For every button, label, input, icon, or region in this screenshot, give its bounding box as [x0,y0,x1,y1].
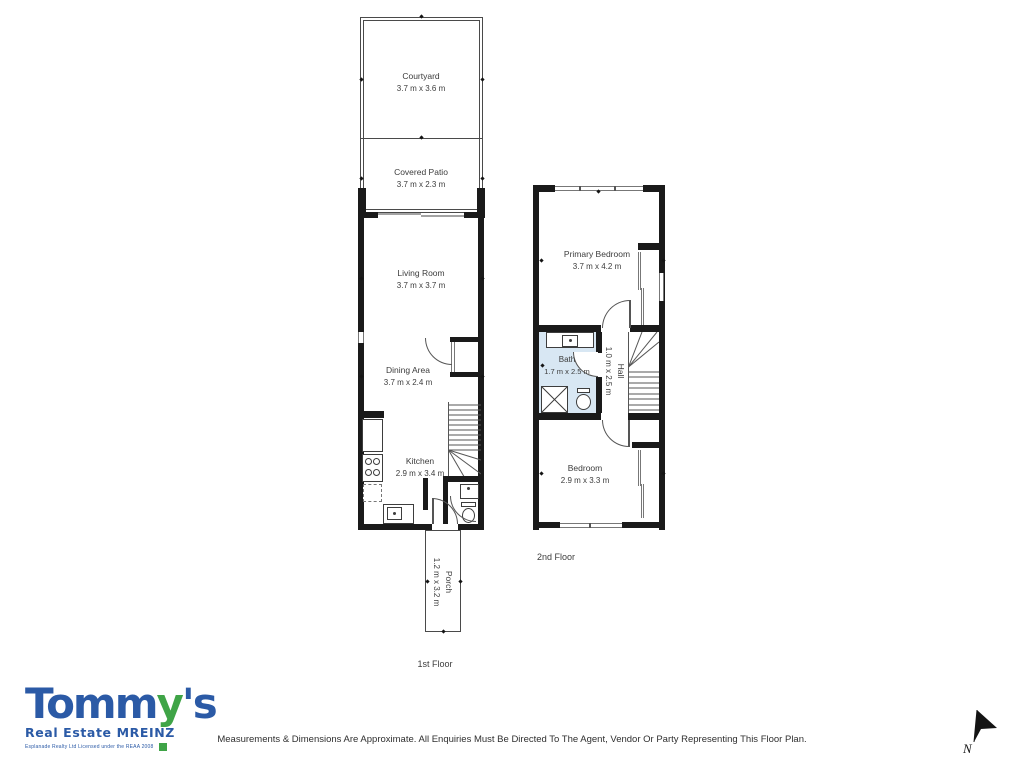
shower [541,386,568,413]
window-mullion [579,186,581,191]
toilet-bowl [576,394,591,410]
room-label-courtyard: Courtyard 3.7 m x 3.6 m [371,70,471,95]
room-dims: 1.0 m x 2.5 m [602,336,614,406]
room-label-bedroom: Bedroom 2.9 m x 3.3 m [535,462,635,487]
closet-sliding-door [641,484,644,518]
logo-text-blue-2: 's [182,679,216,728]
dishwasher [363,484,382,502]
wall-segment [632,442,665,448]
wall-segment [458,524,484,530]
room-dims: 3.7 m x 2.3 m [371,179,471,191]
room-label-kitchen: Kitchen 2.9 m x 3.4 m [370,455,470,480]
room-dims: 2.9 m x 3.3 m [535,475,635,487]
first-floor-label: 1st Floor [385,659,485,669]
door-leaf [628,420,630,447]
logo-key-y: y [156,679,181,728]
sliding-door [378,213,421,215]
room-dims: 3.7 m x 3.7 m [371,280,471,292]
closet-sliding-door [641,288,644,325]
room-label-covered-patio: Covered Patio 3.7 m x 2.3 m [371,166,471,191]
sliding-door [421,215,464,217]
room-name: Courtyard [371,70,471,83]
faucet [569,339,572,342]
door-leaf [432,498,434,524]
room-dims: 3.7 m x 3.6 m [371,83,471,95]
room-dims: 2.9 m x 3.4 m [370,468,470,480]
room-name: Porch [442,547,455,617]
wall-segment [659,185,665,530]
wall-segment [630,325,665,332]
room-name: Bedroom [535,462,635,475]
faucet [467,487,470,490]
faucet [393,512,396,515]
room-dims: 3.7 m x 4.2 m [547,261,647,273]
wall-segment [358,524,432,530]
dimension-tick [480,77,484,81]
wall-segment [533,522,560,528]
room-label-hall: Hall 1.0 m x 2.5 m [605,336,627,406]
room-label-dining-area: Dining Area 3.7 m x 2.4 m [358,364,458,389]
window [560,523,622,528]
door-swing [425,338,452,365]
dimension-tick [458,579,462,583]
first-floor-plan: Porch 1.2 m x 3.2 m Courtyard 3.7 m x 3.… [356,14,488,676]
window [358,332,364,343]
north-label: N [962,741,973,756]
north-arrow-icon: N [960,700,1006,758]
second-floor-plan: Primary Bedroom 3.7 m x 4.2 m Bath 1.7 m… [531,183,667,565]
toilet-tank [577,388,590,393]
wall-segment [622,522,665,528]
wall-segment [596,377,602,413]
room-name: Kitchen [370,455,470,468]
fridge [362,419,383,452]
wall-segment [643,185,665,192]
shower-glass-lines [542,387,567,412]
floor-plan-page: Porch 1.2 m x 3.2 m Courtyard 3.7 m x 3.… [0,0,1024,768]
wall-segment [533,185,555,192]
room-dims: 1.2 m x 3.2 m [430,547,442,617]
door-swing [602,420,629,447]
wall-segment [358,188,366,214]
room-label-living-room: Living Room 3.7 m x 3.7 m [371,267,471,292]
wall-segment [477,188,485,214]
closet-sliding-door [638,450,641,486]
room-label-primary-bedroom: Primary Bedroom 3.7 m x 4.2 m [547,248,647,273]
dimension-tick [596,189,600,193]
door-leaf [629,300,631,328]
disclaimer-text: Measurements & Dimensions Are Approximat… [0,734,1024,745]
logo-text-blue: Tomm [25,679,156,728]
dimension-tick [539,258,543,262]
room-dims: 3.7 m x 2.4 m [358,377,458,389]
room-name: Primary Bedroom [547,248,647,261]
wall-segment [450,337,484,342]
room-dims: 1.7 m x 2.5 m [537,366,597,377]
wall-segment [539,413,601,420]
window-mullion [589,523,591,528]
window [659,273,664,301]
room-name: Dining Area [358,364,458,377]
room-name: Bath [537,354,597,366]
staircase [628,332,659,413]
wall-segment [423,478,428,510]
room-label-bath: Bath 1.7 m x 2.5 m [537,354,597,377]
room-name: Hall [614,336,627,406]
door-swing [602,300,630,328]
wall-segment [596,332,602,353]
room-name: Living Room [371,267,471,280]
window-mullion [614,186,616,191]
room-label-porch: Porch 1.2 m x 3.2 m [431,547,455,617]
dimension-tick [441,629,445,633]
room-name: Covered Patio [371,166,471,179]
dimension-tick [480,176,484,180]
second-floor-label: 2nd Floor [537,552,575,562]
logo-wordmark: Tommy's [25,684,216,724]
wall-segment [358,411,384,418]
wall-segment [539,325,601,332]
wall-segment [628,413,665,420]
